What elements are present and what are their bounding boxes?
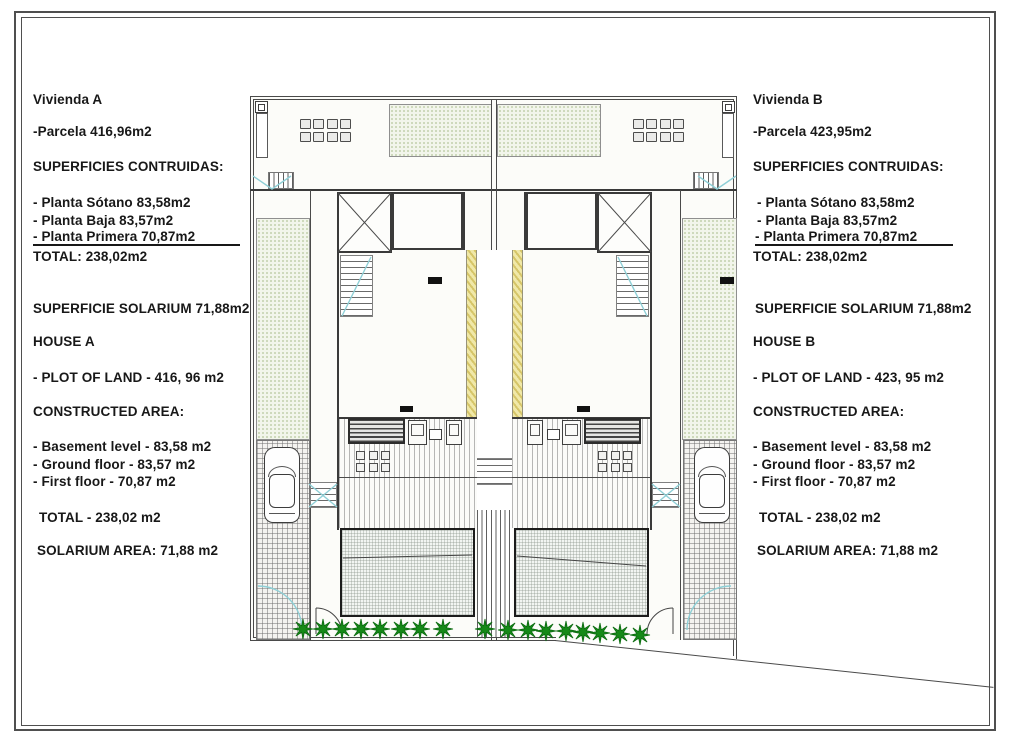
- house-a-title: HOUSE A: [33, 334, 95, 349]
- house-a-plot: - PLOT OF LAND - 416, 96 m2: [33, 370, 224, 385]
- plot-boundary-left-outer: [250, 96, 251, 641]
- lounger-pad: [411, 424, 424, 436]
- roof-table-chair: [646, 119, 657, 129]
- pergola-b: [584, 418, 641, 444]
- plot-boundary-top-inner: [253, 99, 734, 100]
- utility-box-icon: [722, 101, 735, 113]
- villa-b-planta-primera-label: - Planta Primera 70,87m2: [755, 229, 917, 244]
- car-icon: [264, 447, 300, 523]
- villa-a-planta-primera: - Planta Primera 70,87m2: [33, 229, 240, 246]
- utility-box-icon: [255, 101, 268, 113]
- roof-table-chair: [646, 132, 657, 142]
- house-b-solarium: SOLARIUM AREA: 71,88 m2: [757, 543, 938, 558]
- patio-table-chair: [611, 451, 620, 460]
- pool-b: [514, 528, 649, 617]
- villa-a-planta-primera-label: - Planta Primera 70,87m2: [33, 229, 195, 244]
- house-b-title: HOUSE B: [753, 334, 815, 349]
- site-plan-sheet: Vivienda A -Parcela 416,96m2 SUPERFICIES…: [0, 0, 1020, 745]
- sun-lounger: [527, 420, 543, 445]
- walkway-stairs-a: [310, 482, 337, 508]
- front-room-b: [526, 192, 597, 250]
- roof-table-chair: [300, 119, 311, 129]
- porch-wall-b: [524, 192, 526, 250]
- roof-table-chair: [633, 132, 644, 142]
- utility-box-inner: [258, 104, 265, 111]
- sun-lounger: [562, 420, 581, 445]
- walkway-wall-b: [680, 190, 681, 640]
- roof-table-chair: [313, 132, 324, 142]
- lounger-pad: [565, 424, 578, 436]
- patio-table-chair: [356, 451, 365, 460]
- patio-table-chair: [356, 463, 365, 472]
- villa-a-solarium: SUPERFICIE SOLARIUM 71,88m2: [33, 301, 250, 316]
- villa-a-title: Vivienda A: [33, 92, 102, 107]
- villa-b-parcela: -Parcela 423,95m2: [753, 124, 872, 139]
- front-room-a: [392, 192, 463, 250]
- roof-pergola-area-a: [389, 104, 492, 157]
- stair-bulkhead-left: [256, 113, 268, 158]
- patio-table-chair: [381, 463, 390, 472]
- villa-b-solarium: SUPERFICIE SOLARIUM 71,88m2: [755, 301, 972, 316]
- car-roof: [269, 474, 295, 508]
- corridor-decking: [477, 510, 512, 637]
- interior-stairs-a: [340, 255, 373, 317]
- house-b-first: - First floor - 70,87 m2: [753, 474, 896, 489]
- sun-lounger: [408, 420, 427, 445]
- house-b-basement: - Basement level - 83,58 m2: [753, 439, 931, 454]
- patio-table-chair: [623, 451, 632, 460]
- side-table: [429, 429, 442, 440]
- villa-a-superficies-heading: SUPERFICIES CONTRUIDAS:: [33, 159, 224, 174]
- villa-b-planta-baja: - Planta Baja 83,57m2: [757, 213, 897, 228]
- villa-b-planta-primera: - Planta Primera 70,87m2: [755, 229, 953, 246]
- lounger-pad: [530, 424, 540, 436]
- villa-a-total: TOTAL: 238,02m2: [33, 249, 147, 264]
- house-a-ground: - Ground floor - 83,57 m2: [33, 457, 195, 472]
- deck-a-edge-line: [339, 477, 477, 478]
- sun-lounger: [446, 420, 462, 445]
- roof-table-chair: [300, 132, 311, 142]
- roof-pergola-area-b: [497, 104, 601, 157]
- door-tag: [400, 406, 413, 412]
- skylight-room-a: [337, 192, 392, 253]
- patio-table-chair: [381, 451, 390, 460]
- garden-strip-b: [682, 218, 737, 440]
- patio-table-chair: [598, 463, 607, 472]
- roof-table-chair: [340, 132, 351, 142]
- plan-level-divider: [250, 189, 737, 191]
- roof-table-chair: [327, 132, 338, 142]
- roof-table-chair: [340, 119, 351, 129]
- plot-boundary-bottom-outer: [250, 640, 556, 641]
- roof-stairs-b: [693, 172, 719, 189]
- house-a-solarium: SOLARIUM AREA: 71,88 m2: [37, 543, 218, 558]
- house-b-total: TOTAL - 238,02 m2: [759, 510, 881, 525]
- lounger-pad: [449, 424, 459, 436]
- walkway-stairs-b: [652, 482, 679, 508]
- villa-a-parcela: -Parcela 416,96m2: [33, 124, 152, 139]
- house-b-constructed-heading: CONSTRUCTED AREA:: [753, 404, 904, 419]
- door-tag: [577, 406, 590, 412]
- roof-table-chair: [327, 119, 338, 129]
- villa-b-title: Vivienda B: [753, 92, 823, 107]
- villa-b-superficies-heading: SUPERFICIES CONTRUIDAS:: [753, 159, 944, 174]
- patio-table-chair: [369, 451, 378, 460]
- roof-table-chair: [633, 119, 644, 129]
- house-a-basement: - Basement level - 83,58 m2: [33, 439, 211, 454]
- patio-table-chair: [611, 463, 620, 472]
- pergola-a: [348, 418, 405, 444]
- house-b-ground: - Ground floor - 83,57 m2: [753, 457, 915, 472]
- patio-table-chair: [623, 463, 632, 472]
- villa-b-total: TOTAL: 238,02m2: [753, 249, 867, 264]
- skylight-room-b: [597, 192, 652, 253]
- roof-table-chair: [660, 119, 671, 129]
- corridor-steps: [477, 458, 512, 485]
- garden-strip-a: [256, 218, 310, 440]
- room-tag: [720, 277, 734, 284]
- roof-stairs-a: [268, 172, 294, 189]
- roof-table-chair: [673, 119, 684, 129]
- car-icon: [694, 447, 730, 523]
- pool-a: [340, 528, 475, 617]
- walkway-wall-a: [310, 190, 311, 640]
- villa-a-planta-sotano: - Planta Sótano 83,58m2: [33, 195, 191, 210]
- house-a-constructed-heading: CONSTRUCTED AREA:: [33, 404, 184, 419]
- plot-boundary-top-outer: [250, 96, 737, 97]
- car-roof: [699, 474, 725, 508]
- stair-bulkhead-right: [722, 113, 734, 158]
- villa-b-planta-sotano: - Planta Sótano 83,58m2: [757, 195, 915, 210]
- car-rear-line: [269, 513, 295, 514]
- villa-a-planta-baja: - Planta Baja 83,57m2: [33, 213, 173, 228]
- house-a-total: TOTAL - 238,02 m2: [39, 510, 161, 525]
- porch-wall-a: [463, 192, 465, 250]
- utility-box-inner: [725, 104, 732, 111]
- roof-table-chair: [673, 132, 684, 142]
- roof-table-chair: [313, 119, 324, 129]
- house-a-first: - First floor - 70,87 m2: [33, 474, 176, 489]
- deck-b-edge-line: [512, 477, 650, 478]
- plot-boundary-left-inner: [253, 99, 254, 638]
- roof-table-chair: [660, 132, 671, 142]
- side-table: [547, 429, 560, 440]
- house-b-east-wall: [650, 253, 652, 530]
- patio-table-chair: [369, 463, 378, 472]
- room-tag: [428, 277, 442, 284]
- house-b-plot: - PLOT OF LAND - 423, 95 m2: [753, 370, 944, 385]
- car-rear-line: [699, 513, 725, 514]
- interior-stairs-b: [616, 255, 649, 317]
- patio-table-chair: [598, 451, 607, 460]
